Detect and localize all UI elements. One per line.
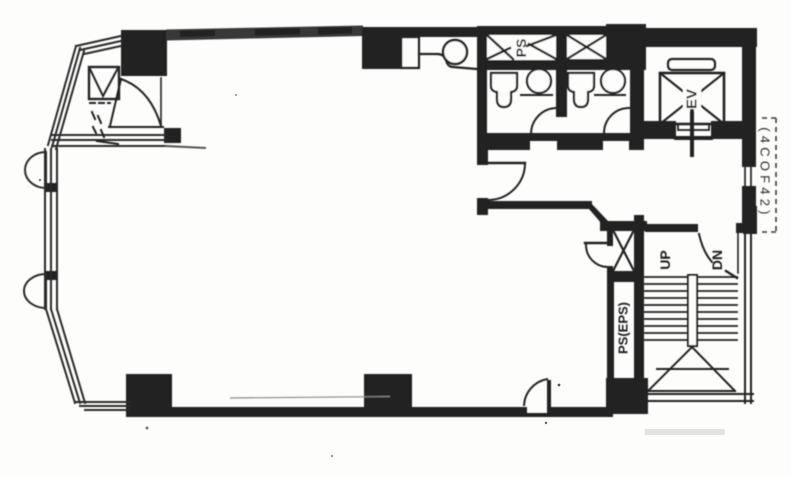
svg-text:(4COF42): (4COF42): [758, 127, 773, 218]
svg-text:EV: EV: [684, 89, 701, 109]
svg-text:PS: PS: [513, 39, 529, 58]
svg-text:DN: DN: [709, 250, 725, 270]
svg-text:PS(EPS): PS(EPS): [616, 302, 631, 354]
svg-text:UP: UP: [657, 250, 673, 269]
